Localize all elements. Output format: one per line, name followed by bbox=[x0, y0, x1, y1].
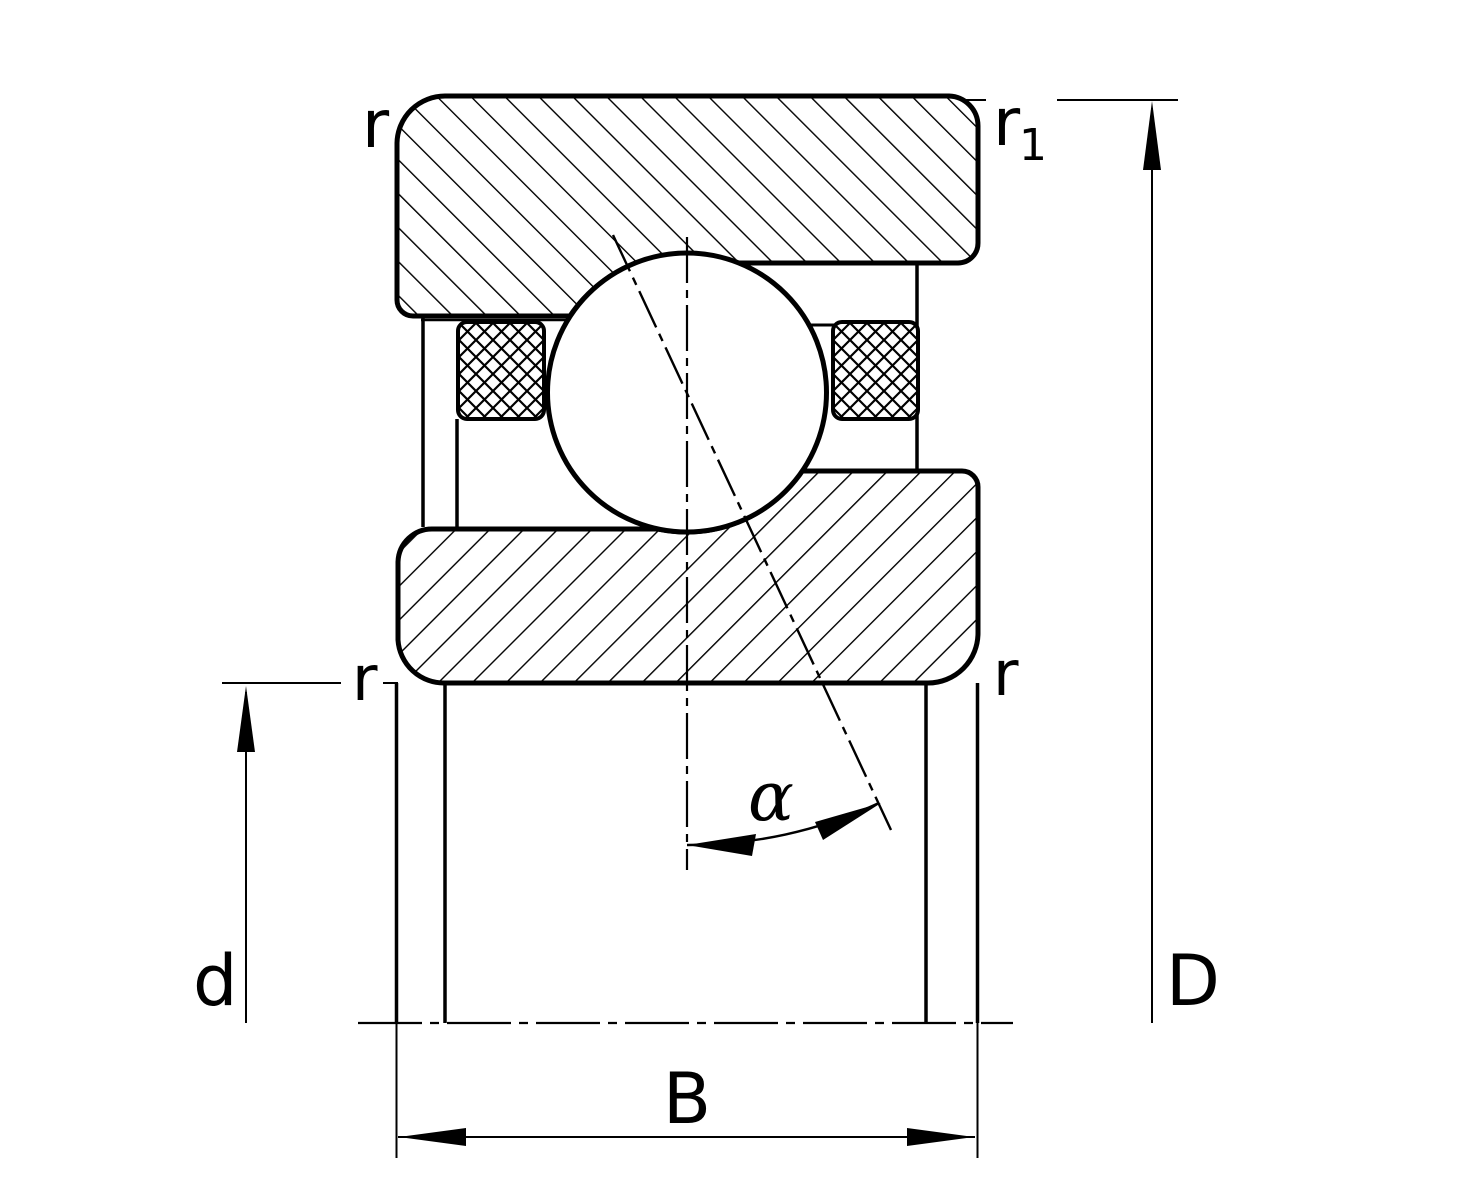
label-width: B bbox=[663, 1058, 711, 1140]
label-bore-diameter: d bbox=[193, 940, 237, 1022]
label-chamfer-top-right-subscript: 1 bbox=[1019, 120, 1047, 171]
label-chamfer-top-left: r bbox=[362, 86, 390, 163]
bearing-drawing-canvas: r r 1 r r d D B α bbox=[0, 0, 1466, 1200]
bearing-cross-section-diagram: r r 1 r r d D B α bbox=[0, 0, 1466, 1200]
cage-section-left bbox=[458, 322, 544, 419]
label-chamfer-mid-left: r bbox=[352, 642, 378, 715]
label-chamfer-mid-right: r bbox=[993, 637, 1019, 710]
label-outside-diameter: D bbox=[1166, 940, 1220, 1022]
label-chamfer-top-right: r bbox=[993, 84, 1021, 161]
label-contact-angle: α bbox=[748, 758, 794, 837]
cage-section-right bbox=[833, 322, 918, 419]
